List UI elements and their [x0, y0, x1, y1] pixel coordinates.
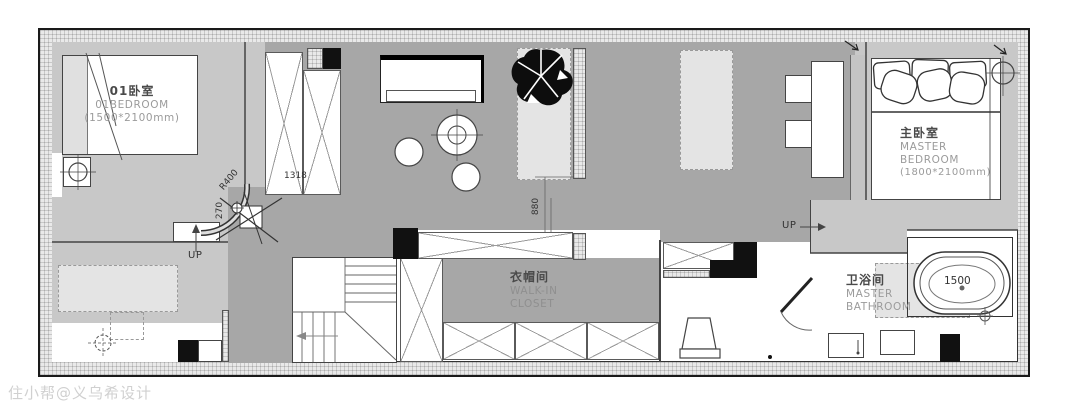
bathroom-name-en2: BATHROOM	[846, 301, 926, 314]
closet-name-en2: CLOSET	[510, 298, 590, 311]
up-label-right: UP	[782, 221, 796, 231]
master-bedroom-name-en1: MASTER	[900, 141, 1000, 154]
lower-left-light	[88, 328, 118, 358]
plant-icon	[512, 49, 573, 105]
coffee-tables	[395, 109, 483, 191]
closet-name-en1: WALK-IN	[510, 285, 590, 298]
bathroom-door	[781, 278, 812, 330]
toilet	[680, 318, 772, 359]
stairs-lines	[292, 258, 396, 362]
dimension-ticks	[845, 41, 1006, 54]
lamp-01	[60, 154, 96, 190]
bathtub	[914, 252, 1010, 325]
master-bedroom-name-cn: 主卧室	[900, 126, 1000, 141]
bedroom01-size: (1500*2100mm)	[70, 112, 194, 125]
up-arrow-left	[192, 224, 200, 252]
bedroom01-label: 01卧室 01BEDROOM (1500*2100mm)	[70, 84, 194, 125]
bedroom01-name-en: 01BEDROOM	[70, 99, 194, 112]
bathroom-label: 卫浴间 MASTER BATHROOM	[846, 273, 926, 314]
bath-cabinet-symbol	[857, 340, 860, 355]
dim-880: 880	[532, 198, 541, 215]
closet-name-cn: 衣帽间	[510, 270, 590, 285]
up-label-left: UP	[188, 251, 202, 261]
master-bedroom-name-en2: BEDROOM	[900, 154, 1000, 167]
watermark: 住小帮@义乌希设计	[8, 382, 152, 403]
master-ceiling-light	[986, 56, 1020, 96]
master-bedroom-label: 主卧室 MASTER BEDROOM (1800*2100mm)	[900, 126, 1000, 180]
bathroom-name-en1: MASTER	[846, 288, 926, 301]
dim-1500: 1500	[944, 276, 971, 287]
master-bedroom-size: (1800*2100mm)	[900, 167, 1000, 180]
dim-270: 270	[216, 202, 225, 219]
bathroom-name-cn: 卫浴间	[846, 273, 926, 288]
bedroom01-name-cn: 01卧室	[70, 84, 194, 99]
floor-plan: 01卧室 01BEDROOM (1500*2100mm) 主卧室 MASTER …	[0, 0, 1080, 413]
column-cross-symbol	[216, 192, 282, 244]
closet-label: 衣帽间 WALK-IN CLOSET	[510, 270, 590, 311]
dim-1318: 1318	[284, 172, 307, 181]
up-arrow-right	[800, 223, 826, 231]
